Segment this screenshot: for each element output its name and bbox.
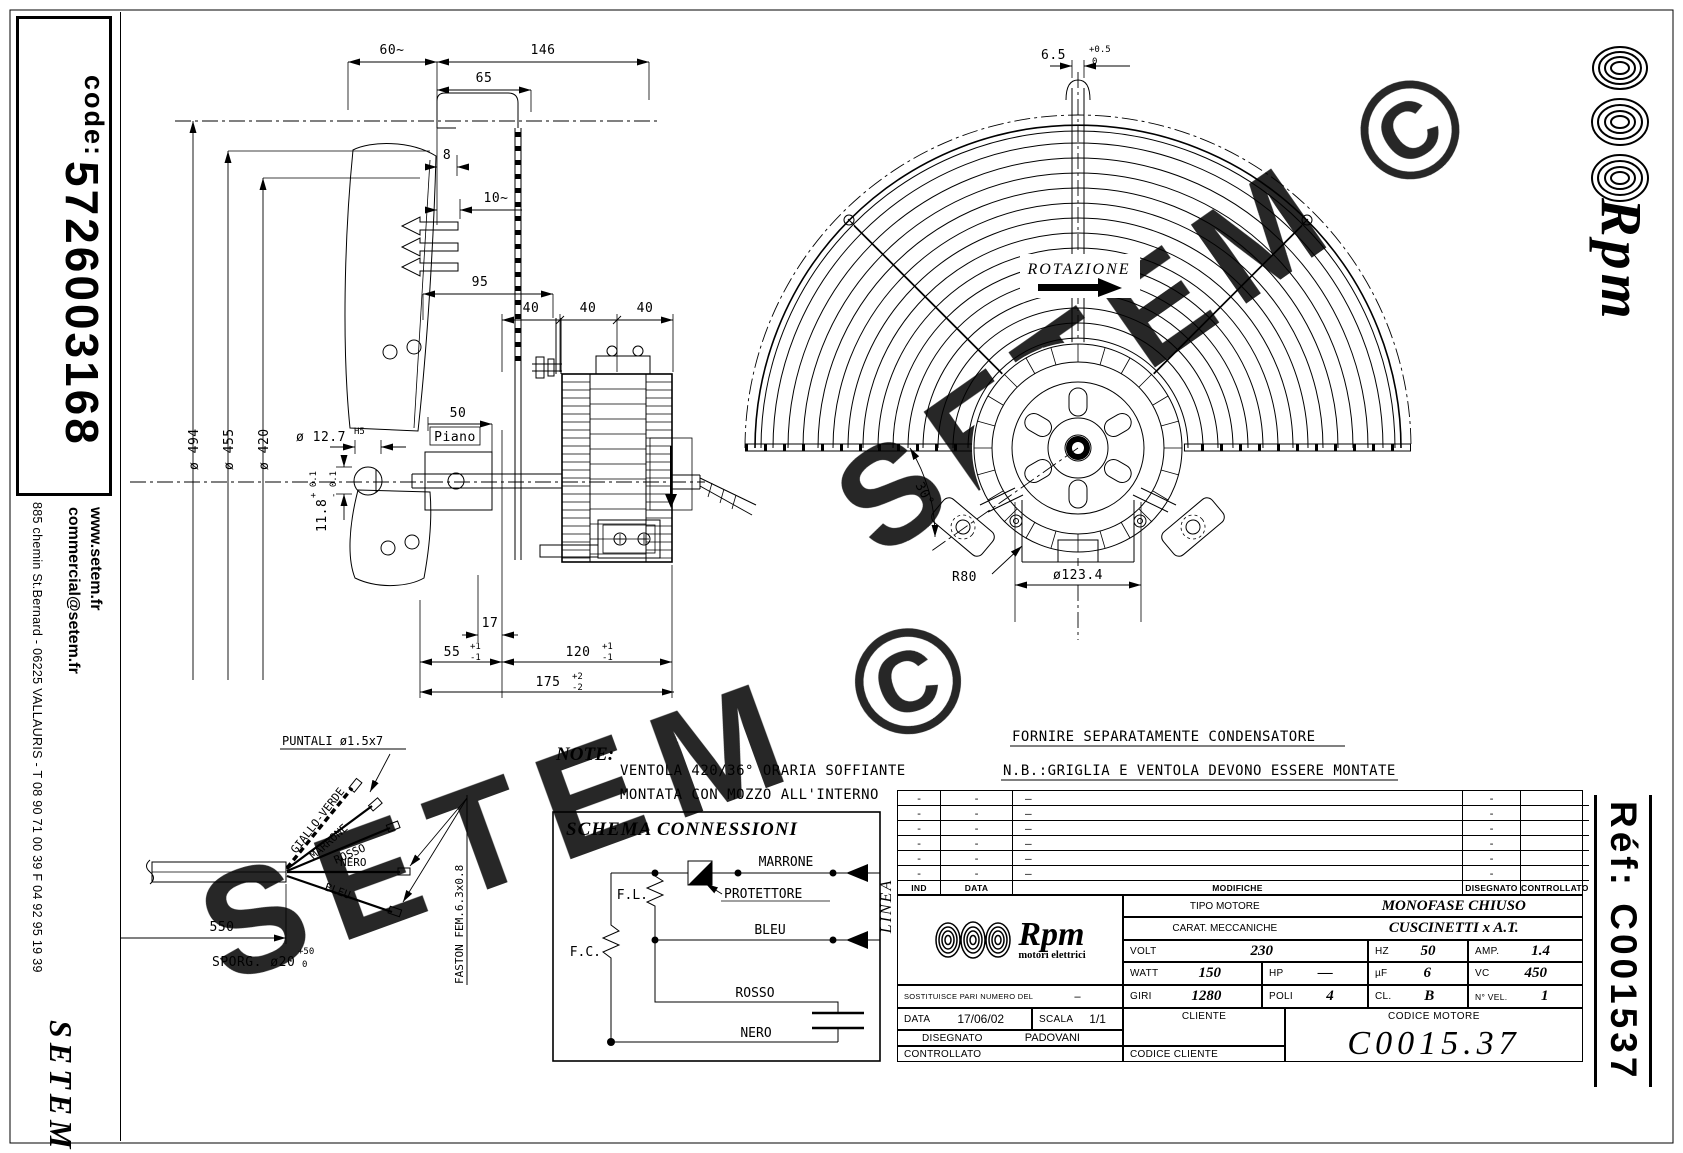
dim-55-plus: +1 xyxy=(470,642,481,652)
dim-55: 55 xyxy=(444,645,461,660)
reference-number: Réf: C001537 xyxy=(1594,795,1652,1087)
drawing-sheet: SETEM © SETEM © xyxy=(0,0,1683,1153)
dim-6-5-plus: +0.5 xyxy=(1089,45,1111,55)
dim-8: 8 xyxy=(443,148,451,163)
tipo-motore-row: TIPO MOTOREMONOFASE CHIUSO xyxy=(1123,895,1583,917)
dim-118-minus: - 0.1 xyxy=(329,471,339,498)
dim-40a: 40 xyxy=(523,301,540,316)
side-view-dimension-labels: 60~ 146 65 8 10~ 95 40 40 40 ø 494 ø 455… xyxy=(187,43,653,693)
schema-title: SCHEMA CONNESSIONI xyxy=(566,819,798,840)
dim-50: 50 xyxy=(450,406,467,421)
schema-nero-label: NERO xyxy=(740,1026,771,1041)
schema-bleu-label: BLEU xyxy=(754,923,785,938)
dim-dia494: ø 494 xyxy=(187,428,202,470)
amp-cell: AMP.1.4 xyxy=(1468,940,1583,962)
rotazione-label: ROTAZIONE xyxy=(1026,261,1130,278)
codice-motore-value: C0015.37 xyxy=(1347,1025,1520,1062)
watt-cell: WATT150 xyxy=(1123,962,1262,985)
note-line1: VENTOLA 420/36° ORARIA SOFFIANTE xyxy=(620,763,906,779)
rpm-coil-logo-large xyxy=(1592,47,1648,201)
faston-label: FASTON FEM.6.3x0.8 xyxy=(453,865,466,984)
website-text: www.setem.fr xyxy=(84,507,106,927)
code-box: code: 5726003168 xyxy=(16,16,112,496)
sidebar: code: 5726003168 www.setem.fr commercial… xyxy=(12,12,121,1141)
poli-cell: POLI4 xyxy=(1262,985,1368,1008)
hp-cell: HP— xyxy=(1262,962,1368,985)
cl-cell: CL.B xyxy=(1368,985,1468,1008)
carat-meccaniche-row: CARAT. MECCANICHECUSCINETTI x A.T. xyxy=(1123,917,1583,940)
sostituisce-row: SOSTITUISCE PARI NUMERO DEL– xyxy=(897,985,1123,1008)
col-data: DATA xyxy=(941,881,1013,894)
dim-175-plus: +2 xyxy=(572,672,583,682)
schema-linea-label: LINEA xyxy=(878,879,895,934)
uf-cell: µF6 xyxy=(1368,962,1468,985)
dim-40c: 40 xyxy=(637,301,654,316)
dim-dia1234: ø123.4 xyxy=(1053,568,1103,583)
code-label: code: xyxy=(19,75,109,157)
dim-6-5-minus: 0 xyxy=(1092,57,1097,67)
dim-120-minus: -1 xyxy=(602,653,613,663)
rpm-brand-cell: Rpm motori elettrici xyxy=(897,895,1123,985)
sporg-label: SPORG. ø20 xyxy=(212,955,295,970)
codice-motore-cell: CODICE MOTORE C0015.37 xyxy=(1285,1008,1583,1062)
data-cell: DATA17/06/02 xyxy=(897,1008,1032,1030)
dim-dia455: ø 455 xyxy=(222,428,237,470)
note-line2: MONTATA CON MOZZO ALL'INTERNO xyxy=(620,787,879,803)
rpm-logo-text: Rpm xyxy=(1588,198,1655,323)
schema-protettore-label: PROTETTORE xyxy=(724,887,802,902)
schema-rosso-label: ROSSO xyxy=(735,986,774,1001)
note-fornire: FORNIRE SEPARATAMENTE CONDENSATORE xyxy=(1012,729,1316,745)
dim-118: 11.8 xyxy=(315,499,330,532)
controllato-row: CONTROLLATO xyxy=(897,1046,1123,1062)
dim-40b: 40 xyxy=(580,301,597,316)
dim-r80: R80 xyxy=(952,570,977,585)
rpm-tagline: motori elettrici xyxy=(1018,950,1085,961)
schema-marrone-label: MARRONE xyxy=(759,855,814,870)
piano-label: Piano xyxy=(434,430,476,445)
col-disegnato: DISEGNATO xyxy=(1463,881,1521,894)
scala-cell: SCALA1/1 xyxy=(1032,1008,1123,1030)
giri-cell: GIRI1280 xyxy=(1123,985,1262,1008)
title-block: --—- --—- --—- --—- --—- --—- IND DATA M… xyxy=(897,790,1583,1062)
dim-118-plus: + 0.1 xyxy=(309,471,319,498)
schema-fc-label: F.C. xyxy=(570,945,601,960)
dim-175-minus: -2 xyxy=(572,683,583,693)
col-controllato: CONTROLLATO xyxy=(1521,881,1589,894)
title-block-main: Rpm motori elettrici TIPO MOTOREMONOFASE… xyxy=(897,895,1583,1062)
dim-175: 175 xyxy=(536,675,561,690)
contact-block: www.setem.fr commercial@setem.fr xyxy=(62,507,106,927)
modifications-table: --—- --—- --—- --—- --—- --—- IND DATA M… xyxy=(897,790,1583,895)
dim-65: 65 xyxy=(476,71,493,86)
dim-55-minus: -1 xyxy=(470,653,481,663)
cliente-cell: CLIENTE xyxy=(1123,1008,1285,1046)
note-label: NOTE: xyxy=(555,744,614,765)
codice-cliente-cell: CODICE CLIENTE xyxy=(1123,1046,1285,1062)
disegnato-row: DISEGNATO PADOVANI xyxy=(897,1030,1123,1046)
dim-10: 10~ xyxy=(484,191,509,206)
hz-cell: HZ50 xyxy=(1368,940,1468,962)
sporg-plus: +50 xyxy=(298,947,314,957)
wire-nero-label: NERO xyxy=(340,856,367,869)
dim-6-5: 6.5 xyxy=(1041,48,1066,63)
dim-146: 146 xyxy=(531,43,556,58)
volt-cell: VOLT230 xyxy=(1123,940,1368,962)
code-value: 5726003168 xyxy=(19,161,109,447)
dim-550: 550 xyxy=(210,920,235,935)
dim-120: 120 xyxy=(566,645,591,660)
schema-fl-label: F.L. xyxy=(617,888,648,903)
col-ind: IND xyxy=(898,881,941,894)
dim-dia420: ø 420 xyxy=(257,428,272,470)
dim-dia127-tol: H5 xyxy=(354,427,365,437)
puntali-label: PUNTALI ø1.5x7 xyxy=(282,734,383,748)
sporg-minus: 0 xyxy=(302,960,307,970)
rpm-coil-logo-small xyxy=(934,917,1012,963)
dim-17: 17 xyxy=(482,616,499,631)
dim-dia127: ø 12.7 xyxy=(296,430,346,445)
note-nb: N.B.:GRIGLIA E VENTOLA DEVONO ESSERE MON… xyxy=(1003,763,1396,779)
setem-logo: SETEM xyxy=(42,1020,79,1153)
email-text: commercial@setem.fr xyxy=(62,507,84,927)
nvel-cell: N° VEL.1 xyxy=(1468,985,1583,1008)
vc-cell: VC450 xyxy=(1468,962,1583,985)
col-modifiche: MODIFICHE xyxy=(1013,881,1463,894)
dim-95: 95 xyxy=(472,275,489,290)
dim-120-plus: +1 xyxy=(602,642,613,652)
rpm-name: Rpm xyxy=(1018,920,1085,950)
dim-60: 60~ xyxy=(380,43,405,58)
